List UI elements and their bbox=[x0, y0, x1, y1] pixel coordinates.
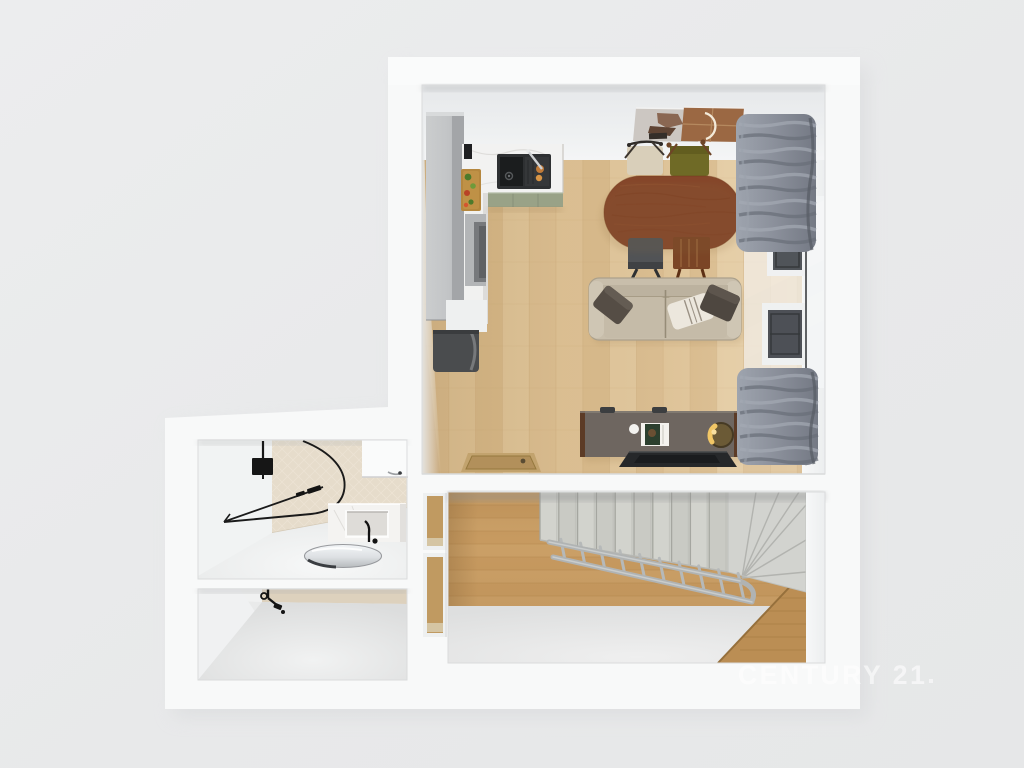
svg-text:CENTURY 21: CENTURY 21 bbox=[738, 660, 927, 690]
